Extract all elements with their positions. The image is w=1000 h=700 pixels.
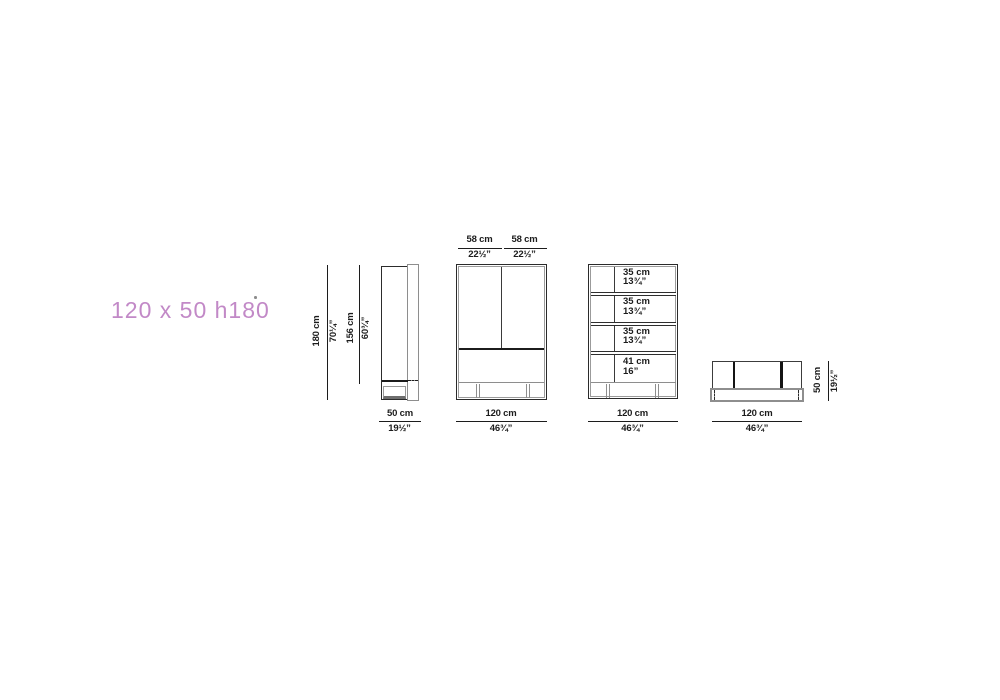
side-view-plinth [383,386,406,399]
side-depth-in: 19½” [388,424,410,434]
shelf-3-label: 35 cm 13¾” [623,327,650,346]
side-depth-dim-line [379,421,421,422]
shelf-view-plinth-divider-right [655,384,659,398]
top-view-dash-right [798,390,799,400]
shelf-1-bar [591,292,676,296]
left-door-width-in: 22½” [468,250,490,260]
technical-drawing-canvas: 120 x 50 h180 180 cm 70¼” 156 cm 60¾” 50… [0,0,1000,700]
front-view-plinth-divider-left [476,384,480,398]
shelf-1-label: 35 cm 13¾” [623,268,650,287]
front-view-doors-bottom-line [459,348,544,350]
side-height-in: 70¼” [329,320,339,342]
right-door-width-cm: 58 cm [512,235,538,245]
front-width-in: 46¾” [490,424,512,434]
top-view-body [712,361,803,389]
front-width-dim-line [456,421,547,422]
top-view-partition-right [780,362,783,389]
shelf-3-in: 13¾” [623,336,650,346]
right-door-width-in: 22½” [513,250,535,260]
side-interior-height-in: 60¾” [361,317,371,339]
top-depth-in: 19½” [830,369,840,391]
shelf-2-label: 35 cm 13¾” [623,297,650,316]
left-door-width-cm: 58 cm [467,235,493,245]
shelf-1-in: 13¾” [623,277,650,287]
side-view-plinth-line [382,380,408,382]
side-view-plinth-dashed-line [408,380,418,381]
shelf-view-plinth-top-line [591,382,676,384]
top-width-in: 46¾” [746,424,768,434]
front-view-door-divider [501,267,502,348]
side-height-cm: 180 cm [312,315,322,346]
shelf-2-bar [591,322,676,326]
shelf-4-label: 41 cm 16” [623,357,650,376]
front-view-plinth-top-line [459,382,544,384]
shelf-view-width-dim-line [588,421,679,422]
shelf-view-plinth-divider-left [606,384,610,398]
side-interior-height-cm: 156 cm [346,312,356,343]
small-dot [254,296,257,299]
shelf-view-width-cm: 120 cm [617,409,648,419]
product-size-label: 120 x 50 h180 [111,295,270,325]
shelf-4-in: 16” [623,367,650,377]
top-view-dash-left [714,390,715,400]
shelf-view-width-in: 46¾” [621,424,643,434]
front-width-cm: 120 cm [485,409,516,419]
top-view-front-band [710,388,805,402]
shelf-3-bar [591,351,676,355]
shelf-2-in: 13¾” [623,307,650,317]
side-depth-cm: 50 cm [387,409,413,419]
top-width-cm: 120 cm [741,409,772,419]
top-depth-cm: 50 cm [813,367,823,393]
front-view-plinth-divider-right [526,384,530,398]
top-view-partition-left [733,362,736,389]
top-width-dim-line [712,421,803,422]
